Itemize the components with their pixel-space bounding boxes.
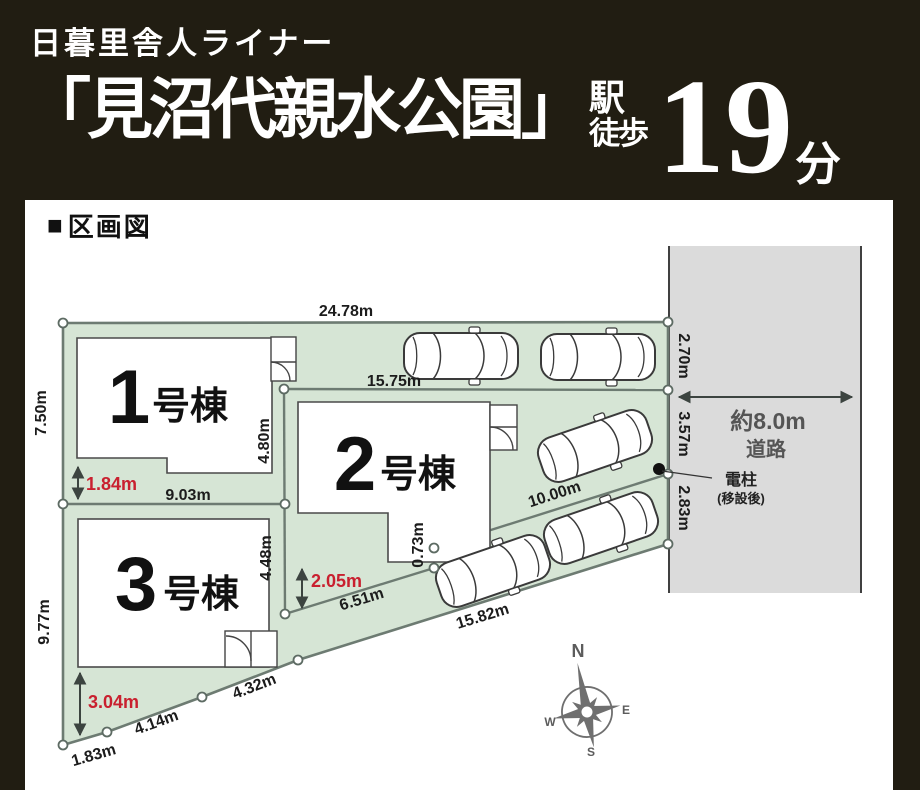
dim-red-plot3: 3.04m (88, 692, 139, 712)
dim-plot2-top: 15.75m (367, 373, 421, 390)
compass-s-label: S (587, 745, 595, 759)
dim-red-plot2: 2.05m (311, 571, 362, 591)
door-icon (225, 631, 277, 667)
compass-n-label: N (572, 641, 585, 661)
compass-rose: N E W S (544, 641, 630, 759)
pole-label: 電柱 (725, 470, 757, 489)
road-label: 道路 (746, 437, 787, 461)
dim-right-2: 3.57m (675, 411, 692, 456)
door-icon (490, 405, 517, 450)
dim-right-3: 2.83m (675, 485, 692, 530)
building-2-suffix: 号棟 (380, 454, 457, 496)
compass-e-label: E (622, 703, 630, 717)
compass-w-label: W (544, 715, 556, 729)
building-2-number: 2 (334, 422, 376, 507)
building-3-number: 3 (115, 542, 157, 627)
road-area: 約8.0m 道路 (668, 246, 862, 593)
building-1-suffix: 号棟 (152, 386, 229, 428)
dim-red-plot1: 1.84m (86, 474, 137, 494)
dim-left-lower: 9.77m (36, 599, 53, 644)
site-plan-svg: 約8.0m 道路 (0, 0, 920, 790)
building-3-suffix: 号棟 (163, 574, 240, 616)
flyer-page: 日暮里舎人ライナー 「見沼代親水公園」 駅 徒歩 19 分 ■ 区画図 (0, 0, 920, 790)
utility-pole-dot (653, 463, 665, 475)
dim-jog: 0.73m (410, 522, 427, 567)
dim-divider-lower: 4.48m (258, 535, 275, 580)
dim-right-1: 2.70m (675, 333, 692, 378)
door-icon (271, 337, 296, 381)
compass-north-needle (573, 662, 591, 707)
dim-left-upper: 7.50m (33, 390, 50, 435)
dim-top: 24.78m (319, 303, 373, 320)
road-width-label: 約8.0m (730, 408, 805, 434)
building-1-number: 1 (108, 355, 150, 440)
pole-note: (移設後) (717, 491, 765, 506)
dim-divider-upper: 4.80m (256, 418, 273, 463)
dim-plot1-bottom: 9.03m (165, 487, 210, 504)
dim-bottom-1: 1.83m (70, 741, 118, 770)
car (541, 328, 655, 386)
